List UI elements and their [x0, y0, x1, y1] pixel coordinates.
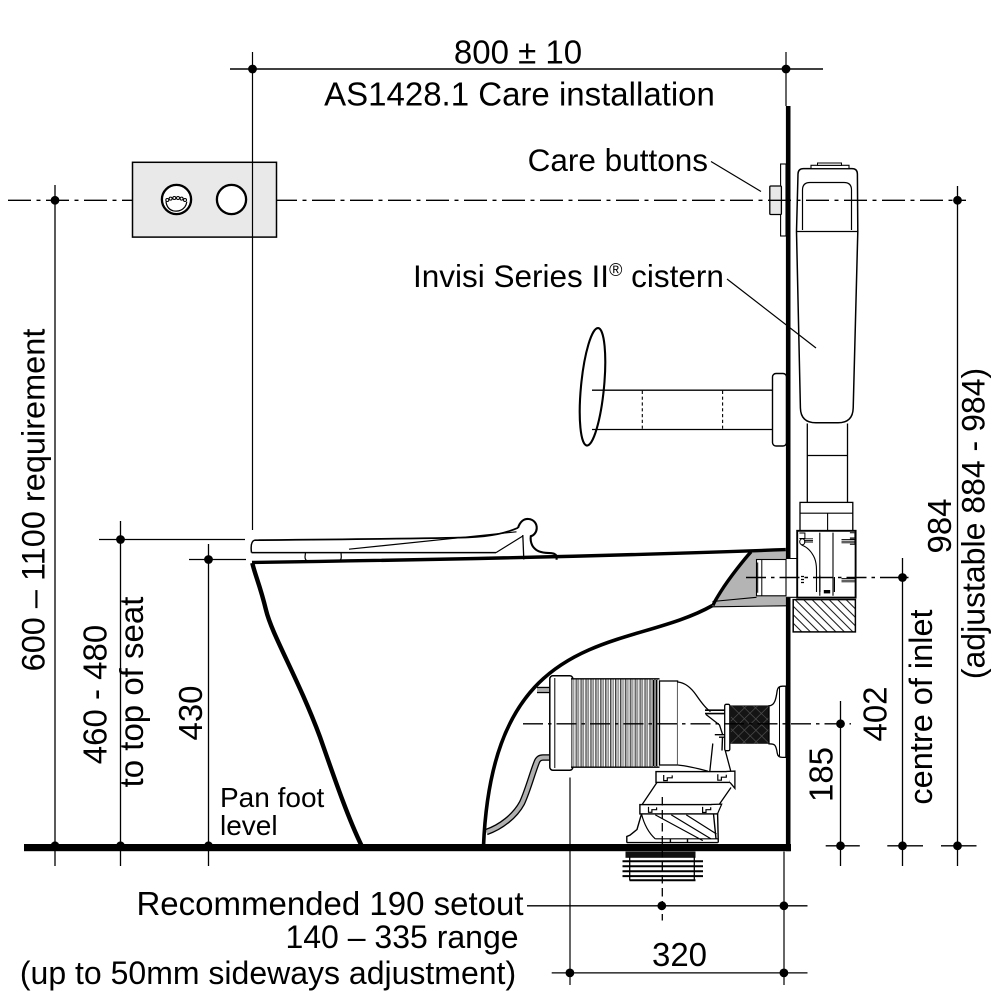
svg-text:800 ± 10: 800 ± 10	[454, 34, 582, 71]
svg-text:430: 430	[172, 685, 209, 740]
svg-text:402: 402	[857, 686, 894, 741]
svg-text:to top of seat: to top of seat	[113, 597, 150, 788]
svg-text:AS1428.1 Care installation: AS1428.1 Care installation	[324, 76, 715, 113]
svg-text:185: 185	[803, 747, 840, 802]
svg-text:(adjustable 884 - 984): (adjustable 884 - 984)	[956, 368, 992, 679]
svg-text:Pan foot: Pan foot	[220, 782, 325, 813]
svg-text:460 - 480: 460 - 480	[77, 625, 114, 764]
svg-text:(up to 50mm sideways adjustmen: (up to 50mm sideways adjustment)	[20, 955, 516, 991]
svg-text:140 – 335 range: 140 – 335 range	[285, 919, 518, 955]
svg-text:Invisi Series II® cistern: Invisi Series II® cistern	[413, 258, 724, 294]
svg-text:320: 320	[652, 936, 707, 973]
svg-text:600 – 1100 requirement: 600 – 1100 requirement	[16, 329, 52, 672]
svg-text:level: level	[220, 810, 278, 841]
svg-text:984: 984	[921, 498, 958, 553]
svg-text:Care buttons: Care buttons	[528, 142, 708, 178]
svg-text:Recommended 190 setout: Recommended 190 setout	[136, 885, 523, 922]
svg-text:centre of inlet: centre of inlet	[903, 609, 939, 804]
